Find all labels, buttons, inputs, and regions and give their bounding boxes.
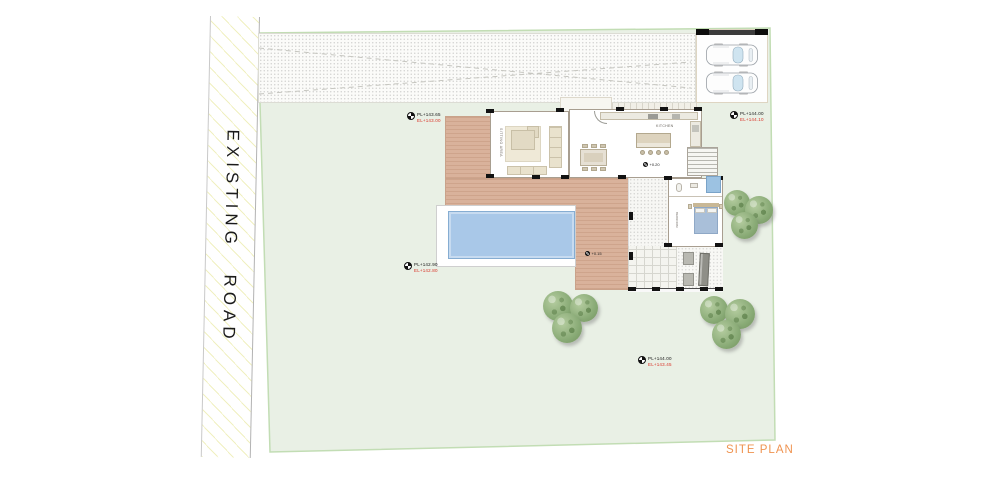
column-marker: [715, 287, 723, 291]
existing-level-value: EL+143.00: [417, 118, 441, 124]
column-marker: [715, 243, 723, 247]
staircase: [687, 147, 718, 176]
existing-level-value: EL+144.10: [740, 117, 764, 123]
level-marker: PL+144.00 EL+144.10: [730, 111, 764, 122]
tree: [731, 212, 758, 239]
dining-chair: [591, 167, 597, 171]
benchmark-icon: [730, 111, 738, 119]
column-marker: [694, 107, 702, 111]
spot-level: +0.20: [643, 162, 660, 167]
column-marker: [532, 175, 540, 179]
spot-level-value: +0.20: [650, 162, 660, 167]
drawing-title: SITE PLAN: [726, 444, 794, 456]
car-top-view: [705, 71, 759, 95]
sitting-area-label: SITTING AREA: [499, 128, 503, 157]
patio-chair: [683, 252, 694, 265]
kitchen-label: KITCHEN: [656, 124, 673, 128]
patio-table: [698, 253, 710, 286]
dining-chair: [582, 144, 588, 148]
patio-chair: [683, 273, 694, 286]
sofa: [511, 130, 535, 150]
column-marker: [618, 175, 626, 179]
column-marker: [556, 108, 564, 112]
column-marker: [660, 107, 668, 111]
bar-stool: [656, 150, 661, 155]
column-marker: [664, 243, 672, 247]
bar-stool: [664, 150, 669, 155]
spot-level: +0.15: [585, 251, 602, 256]
level-marker: PL+142.90 EL+142.80: [404, 262, 438, 273]
cooktop: [648, 114, 658, 119]
plot-level-value: PL+144.00: [648, 356, 672, 362]
kitchen-island: [636, 133, 671, 148]
column-marker: [755, 29, 768, 35]
oven: [692, 125, 699, 132]
benchmark-icon: [407, 112, 415, 120]
tree: [712, 320, 741, 349]
pillow: [695, 208, 705, 213]
dining-chair: [600, 167, 606, 171]
pillow: [707, 208, 717, 213]
existing-level-value: EL+143.45: [648, 362, 672, 368]
column-marker: [700, 287, 708, 291]
dining-chair: [582, 167, 588, 171]
driveway-area: [258, 33, 696, 103]
column-marker: [629, 252, 633, 260]
column-marker: [676, 287, 684, 291]
level-marker: PL+143.65 EL+143.00: [407, 112, 441, 123]
column-marker: [616, 107, 624, 111]
bar-stool: [648, 150, 653, 155]
toilet: [676, 183, 682, 192]
sofa: [549, 126, 562, 168]
car-top-view: [705, 43, 759, 67]
benchmark-icon: [585, 251, 590, 256]
dining-table: [580, 149, 607, 166]
benchmark-icon: [643, 162, 648, 167]
parking-area: [696, 29, 768, 103]
spa-plunge-pool: [706, 176, 721, 193]
level-marker: PL+144.00 EL+143.45: [638, 356, 672, 367]
benchmark-icon: [404, 262, 412, 270]
tiled-paving: [628, 246, 677, 290]
dining-chair: [600, 144, 606, 148]
tree: [552, 313, 582, 343]
bedroom-label: BEDROOM: [675, 212, 679, 228]
nightstand: [688, 204, 692, 209]
bathroom-partition: [669, 196, 722, 197]
swimming-pool: [448, 211, 575, 259]
column-marker: [486, 109, 494, 113]
spot-level-value: +0.15: [592, 251, 602, 256]
column-marker: [628, 287, 636, 291]
bar-stool: [640, 150, 645, 155]
plot-level-value: PL+142.90: [414, 262, 438, 268]
plot-level-value: PL+144.00: [740, 111, 764, 117]
column-marker: [652, 287, 660, 291]
existing-level-value: EL+142.80: [414, 268, 438, 274]
column-marker: [561, 175, 569, 179]
deck-terrace: [445, 116, 492, 179]
nightstand: [719, 204, 723, 209]
deck-terrace: [575, 208, 632, 290]
column-marker: [486, 174, 494, 178]
plot-level-value: PL+143.65: [417, 112, 441, 118]
driveway-guide-lines: [259, 34, 695, 102]
column-marker: [696, 29, 709, 35]
sink: [672, 114, 680, 119]
existing-road-strip: EXISTING ROAD: [201, 16, 260, 458]
site-plan-canvas: EXISTING ROAD: [0, 0, 1000, 500]
column-marker: [664, 176, 672, 180]
benchmark-icon: [638, 356, 646, 364]
dining-chair: [591, 144, 597, 148]
bathroom-sink: [690, 183, 698, 188]
existing-road-label: EXISTING ROAD: [218, 130, 242, 345]
bench-seat: [507, 166, 547, 175]
column-marker: [629, 212, 633, 220]
